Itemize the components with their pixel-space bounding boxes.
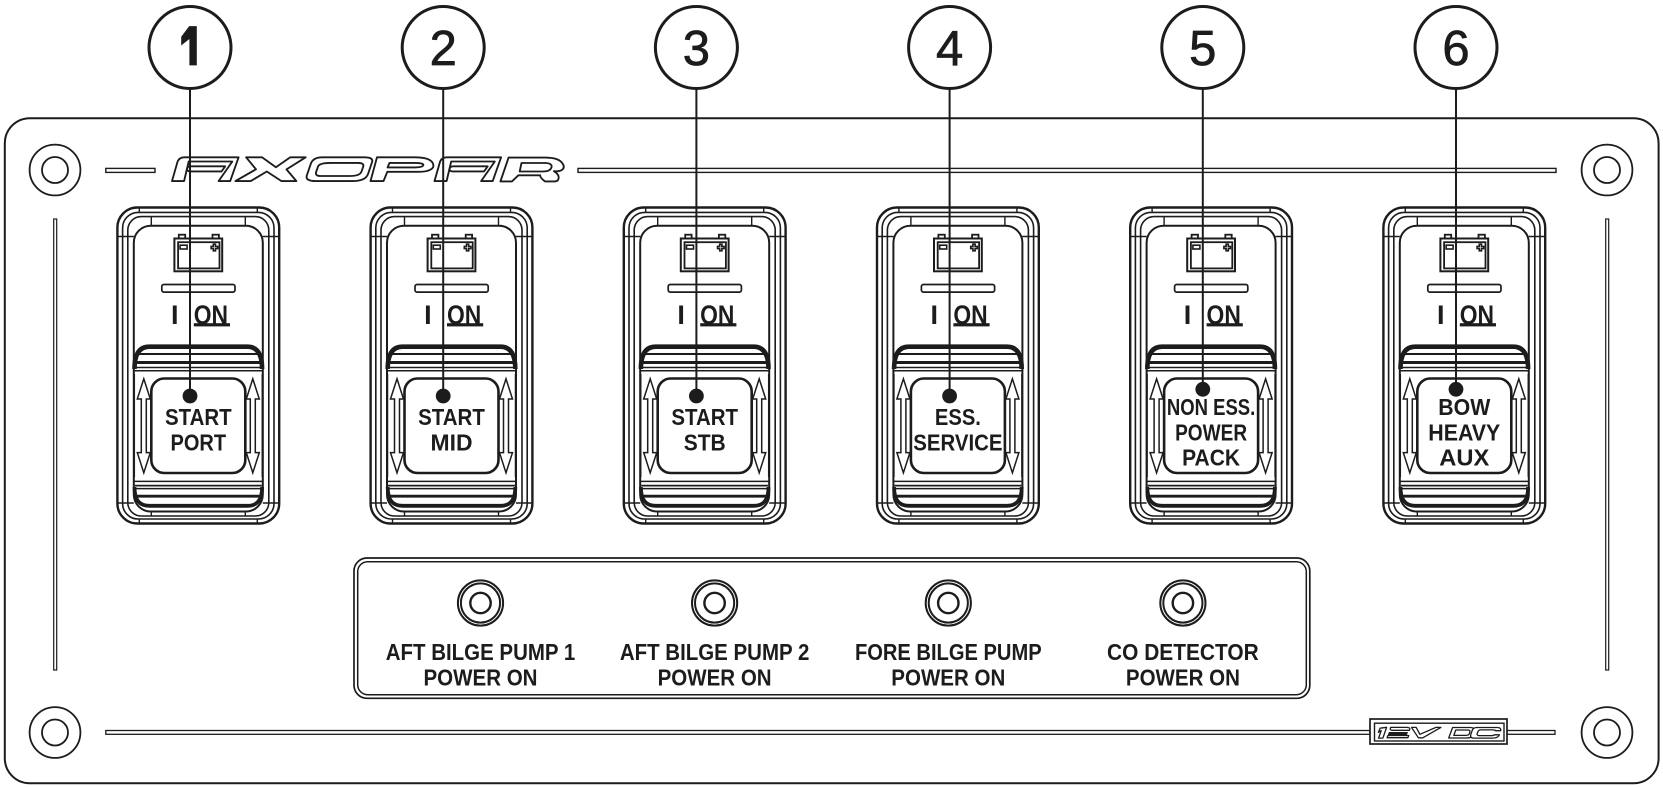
svg-text:START: START xyxy=(418,404,485,430)
svg-text:5: 5 xyxy=(1189,22,1216,76)
svg-text:I: I xyxy=(931,300,939,330)
svg-text:MID: MID xyxy=(431,429,473,455)
svg-text:I: I xyxy=(677,300,685,330)
svg-text:CO DETECTOR: CO DETECTOR xyxy=(1107,639,1259,665)
svg-text:HEAVY: HEAVY xyxy=(1428,419,1500,445)
svg-text:POWER ON: POWER ON xyxy=(1126,665,1240,691)
svg-text:AFT BILGE PUMP 2: AFT BILGE PUMP 2 xyxy=(620,639,810,665)
svg-text:I: I xyxy=(1437,300,1445,330)
svg-text:6: 6 xyxy=(1442,22,1469,76)
svg-text:BOW: BOW xyxy=(1438,394,1490,420)
svg-text:4: 4 xyxy=(936,22,963,76)
svg-text:ESS.: ESS. xyxy=(935,404,981,430)
svg-text:START: START xyxy=(671,404,738,430)
svg-text:I: I xyxy=(424,300,432,330)
svg-text:NON ESS.: NON ESS. xyxy=(1167,394,1255,420)
svg-text:POWER: POWER xyxy=(1175,419,1247,445)
svg-text:POWER ON: POWER ON xyxy=(891,665,1005,691)
svg-text:START: START xyxy=(165,404,232,430)
svg-text:STB: STB xyxy=(684,429,726,455)
svg-text:2: 2 xyxy=(430,22,457,76)
svg-text:SERVICE: SERVICE xyxy=(913,429,1002,455)
svg-text:POWER ON: POWER ON xyxy=(424,665,538,691)
svg-text:FORE BILGE PUMP: FORE BILGE PUMP xyxy=(855,639,1042,665)
svg-text:AUX: AUX xyxy=(1439,445,1489,471)
svg-text:3: 3 xyxy=(683,22,710,76)
svg-text:I: I xyxy=(1184,300,1192,330)
svg-text:AFT BILGE PUMP 1: AFT BILGE PUMP 1 xyxy=(386,639,576,665)
svg-text:POWER ON: POWER ON xyxy=(658,665,772,691)
svg-text:PACK: PACK xyxy=(1182,445,1240,471)
svg-text:I: I xyxy=(171,300,179,330)
svg-text:PORT: PORT xyxy=(171,429,227,455)
